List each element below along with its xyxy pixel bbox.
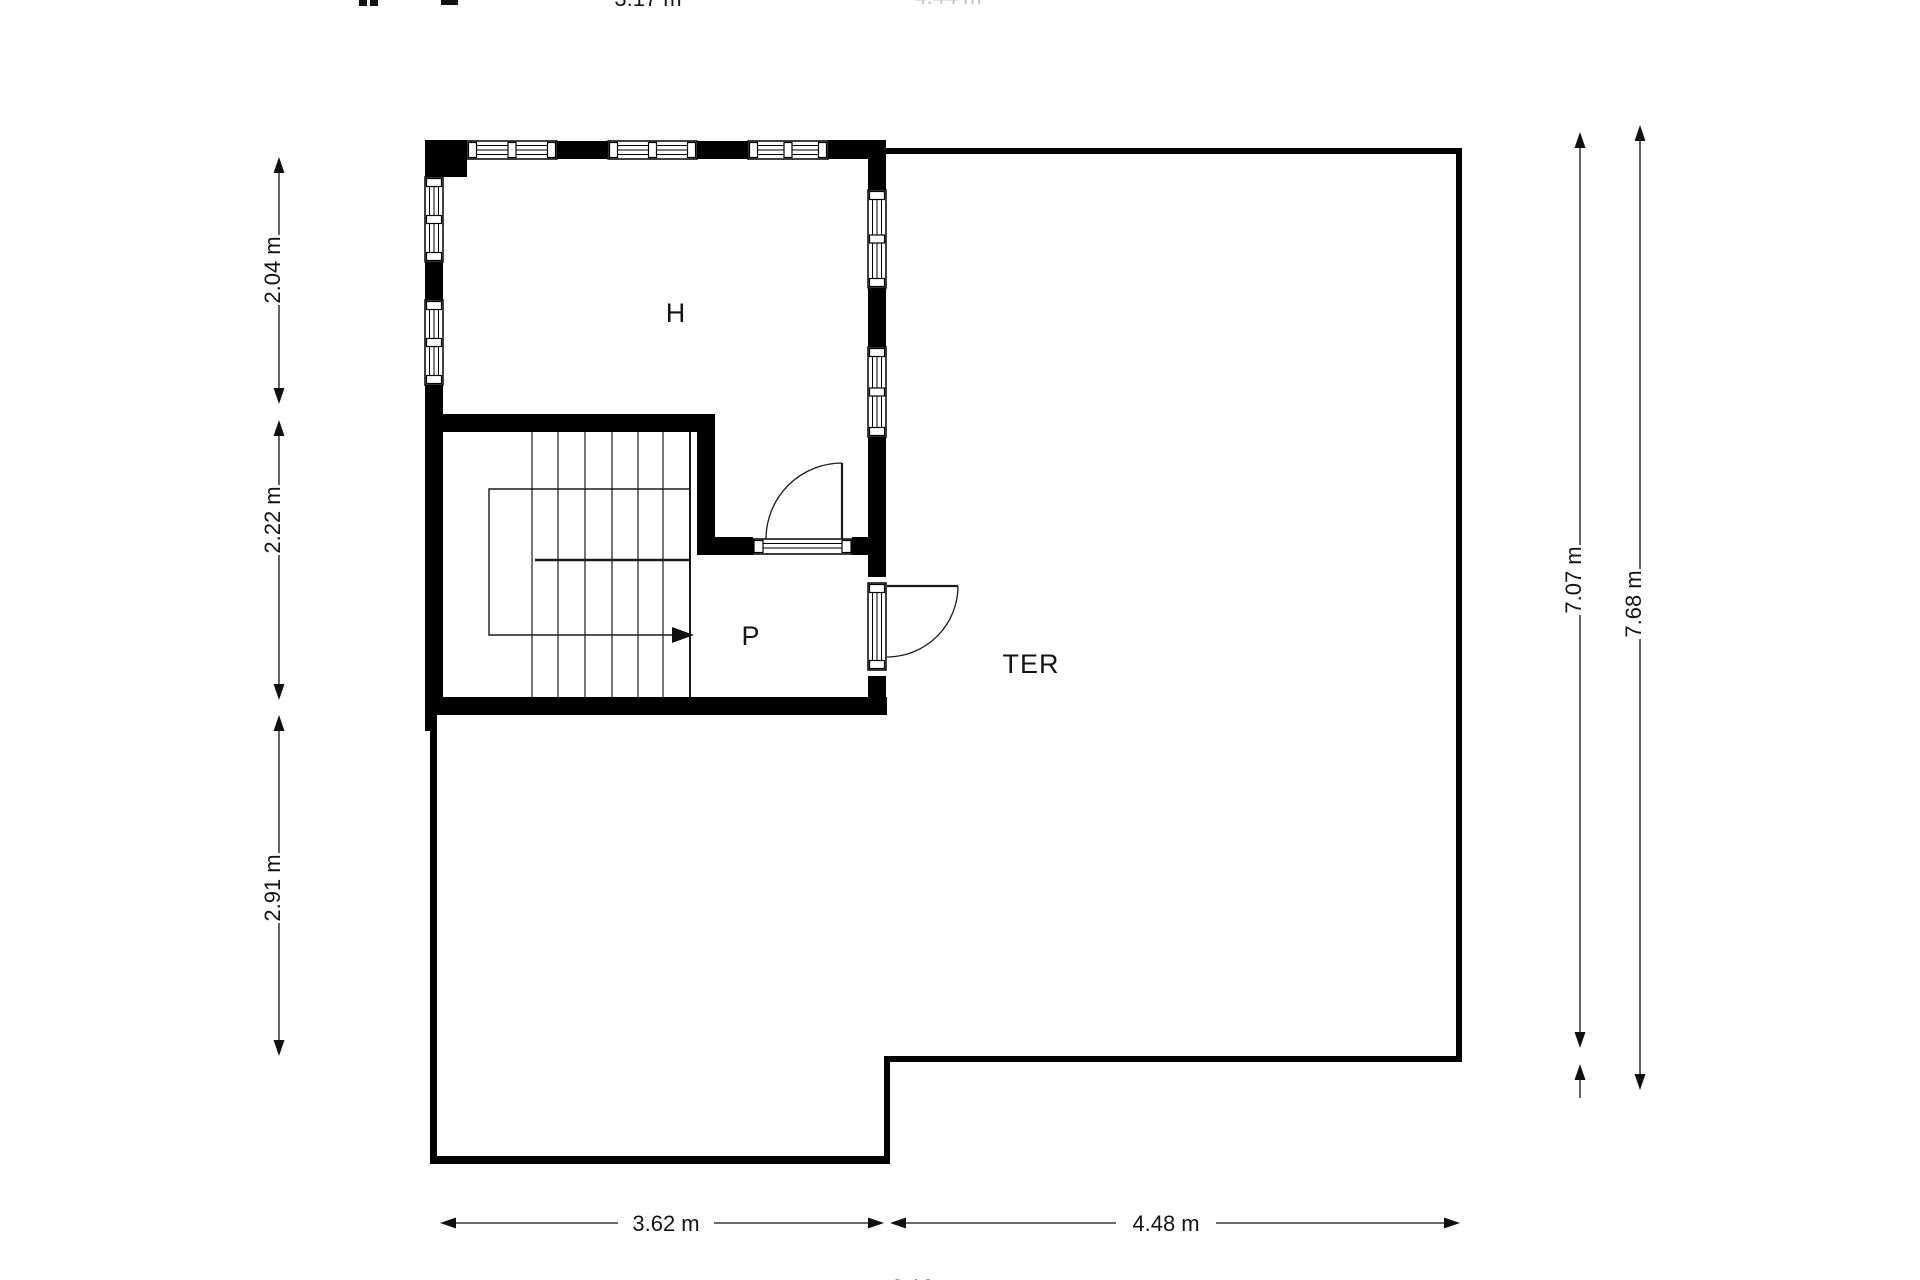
room-label-ter: TER xyxy=(1003,649,1060,679)
staircase xyxy=(489,432,694,697)
window-top-1 xyxy=(467,141,557,159)
window-left-1 xyxy=(425,177,443,262)
door-h xyxy=(753,463,852,554)
room-label-h: H xyxy=(666,298,687,328)
dim-right-1: 7.07 m xyxy=(1561,546,1586,613)
window-top-2 xyxy=(608,141,697,159)
floor-plan: 3.17 m 4.44 m xyxy=(0,0,1920,1280)
thick-walls xyxy=(425,140,887,731)
dim-right-2: 7.68 m xyxy=(1621,570,1646,637)
door-ter xyxy=(868,583,958,670)
door-ter-swing-arc xyxy=(887,586,958,657)
stair-walk-line xyxy=(489,489,690,635)
window-right-1 xyxy=(868,190,886,288)
dim-bottom-total: 8.10 m xyxy=(891,1275,958,1280)
dimension-right-707 xyxy=(1575,132,1586,1098)
dim-left-1: 2.04 m xyxy=(260,236,285,303)
dim-bottom-2: 4.48 m xyxy=(1132,1211,1199,1236)
window-right-2 xyxy=(868,347,886,437)
dim-bottom-1: 3.62 m xyxy=(632,1211,699,1236)
dimension-bottom-chain xyxy=(440,1218,1460,1229)
dim-left-3: 2.91 m xyxy=(260,854,285,921)
top-cutoff-marks xyxy=(359,0,458,6)
window-top-3 xyxy=(748,141,828,159)
window-left-2 xyxy=(425,300,443,385)
dim-top-1: 3.17 m xyxy=(614,0,681,11)
room-label-p: P xyxy=(741,621,760,651)
door-h-swing-arc xyxy=(766,463,842,539)
dim-top-2: 4.44 m xyxy=(914,0,981,9)
dim-left-2: 2.22 m xyxy=(260,486,285,553)
floor-plan-page: 3.17 m 4.44 m xyxy=(0,0,1920,1280)
